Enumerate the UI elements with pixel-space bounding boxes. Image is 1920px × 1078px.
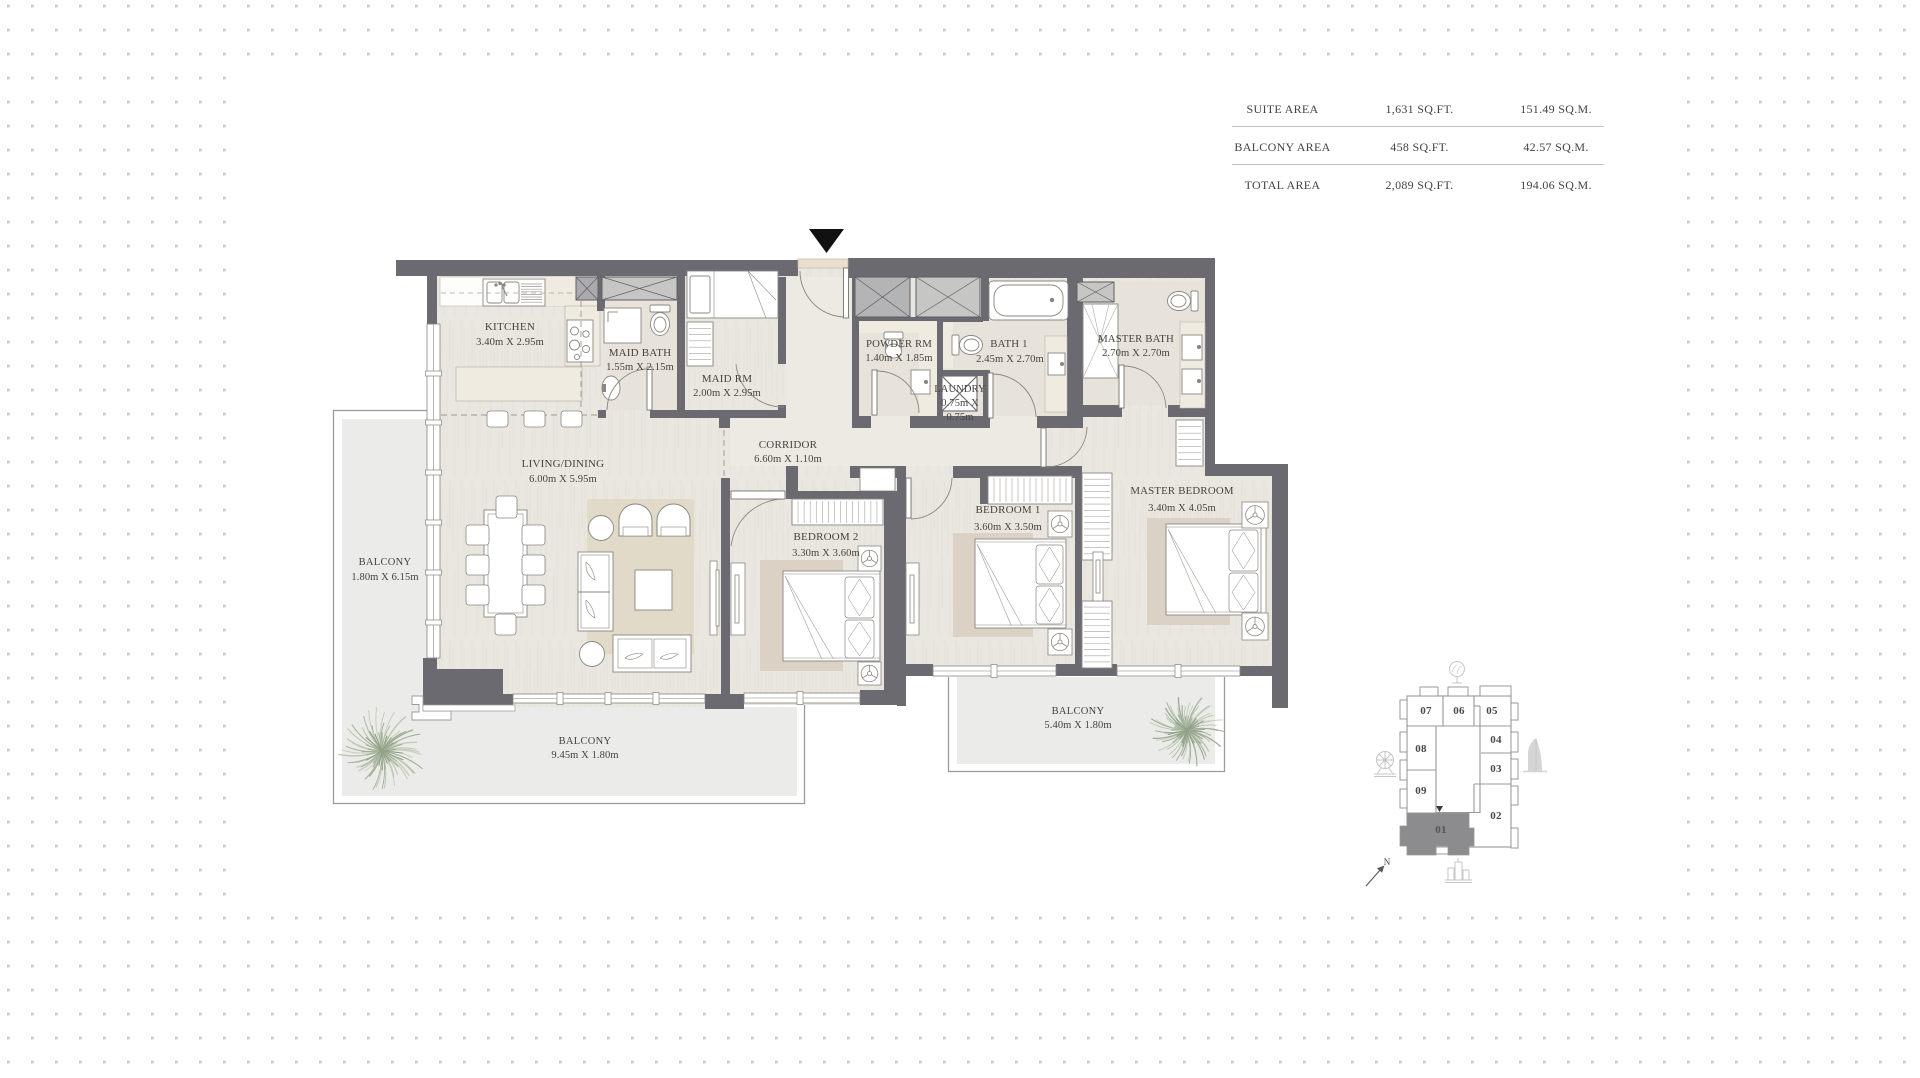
svg-text:151.49 SQ.M.: 151.49 SQ.M. <box>1520 102 1592 116</box>
svg-text:05: 05 <box>1486 705 1498 717</box>
svg-text:3.40m X 2.95m: 3.40m X 2.95m <box>476 337 544 348</box>
svg-text:6.60m X 1.10m: 6.60m X 1.10m <box>754 454 822 465</box>
svg-text:BEDROOM 2: BEDROOM 2 <box>793 531 858 543</box>
svg-text:LAUNDRY: LAUNDRY <box>934 384 986 395</box>
svg-text:9.45m X 1.80m: 9.45m X 1.80m <box>551 750 618 761</box>
svg-text:0.75m X: 0.75m X <box>941 398 979 409</box>
svg-text:3.30m X 3.60m: 3.30m X 3.60m <box>792 548 860 559</box>
svg-text:TOTAL AREA: TOTAL AREA <box>1245 178 1321 192</box>
svg-text:0.75m: 0.75m <box>946 412 973 423</box>
svg-text:09: 09 <box>1415 785 1427 797</box>
svg-text:MAID BATH: MAID BATH <box>609 347 672 359</box>
svg-text:2.70m X 2.70m: 2.70m X 2.70m <box>1102 348 1170 359</box>
svg-text:3.40m X 4.05m: 3.40m X 4.05m <box>1148 503 1216 514</box>
svg-text:MASTER BATH: MASTER BATH <box>1098 333 1174 345</box>
svg-text:03: 03 <box>1490 763 1502 775</box>
svg-text:1.55m X 2.15m: 1.55m X 2.15m <box>606 362 674 373</box>
svg-text:3.60m X 3.50m: 3.60m X 3.50m <box>974 522 1042 533</box>
svg-text:5.40m X 1.80m: 5.40m X 1.80m <box>1044 720 1111 731</box>
svg-text:BALCONY: BALCONY <box>359 557 412 568</box>
svg-text:CORRIDOR: CORRIDOR <box>759 439 818 451</box>
svg-text:04: 04 <box>1490 734 1502 746</box>
svg-text:2,089 SQ.FT.: 2,089 SQ.FT. <box>1385 178 1453 192</box>
svg-text:07: 07 <box>1420 705 1432 717</box>
svg-text:BEDROOM 1: BEDROOM 1 <box>975 504 1040 516</box>
svg-text:BALCONY AREA: BALCONY AREA <box>1234 140 1330 154</box>
svg-text:2.45m X 2.70m: 2.45m X 2.70m <box>976 354 1044 365</box>
svg-text:POWDER RM: POWDER RM <box>866 338 932 350</box>
svg-text:6.00m X 5.95m: 6.00m X 5.95m <box>529 474 597 485</box>
svg-text:42.57 SQ.M.: 42.57 SQ.M. <box>1523 140 1588 154</box>
svg-text:BATH 1: BATH 1 <box>990 338 1028 350</box>
svg-text:01: 01 <box>1435 824 1446 836</box>
svg-text:BALCONY: BALCONY <box>559 736 612 747</box>
svg-text:02: 02 <box>1490 810 1502 822</box>
svg-text:BALCONY: BALCONY <box>1052 706 1105 717</box>
svg-text:KITCHEN: KITCHEN <box>485 321 535 333</box>
svg-text:N: N <box>1384 857 1391 867</box>
svg-text:08: 08 <box>1415 743 1427 755</box>
svg-text:1.80m X 6.15m: 1.80m X 6.15m <box>351 572 418 583</box>
svg-text:SUITE AREA: SUITE AREA <box>1247 102 1319 116</box>
svg-text:458 SQ.FT.: 458 SQ.FT. <box>1390 140 1448 154</box>
svg-text:1,631 SQ.FT.: 1,631 SQ.FT. <box>1385 102 1453 116</box>
svg-text:LIVING/DINING: LIVING/DINING <box>522 458 605 470</box>
svg-text:MASTER BEDROOM: MASTER BEDROOM <box>1130 485 1233 497</box>
svg-text:194.06 SQ.M.: 194.06 SQ.M. <box>1520 178 1592 192</box>
svg-text:1.40m X 1.85m: 1.40m X 1.85m <box>865 353 932 364</box>
svg-text:2.00m X 2.95m: 2.00m X 2.95m <box>693 388 761 399</box>
svg-text:06: 06 <box>1453 705 1465 717</box>
svg-text:MAID RM: MAID RM <box>702 373 753 385</box>
